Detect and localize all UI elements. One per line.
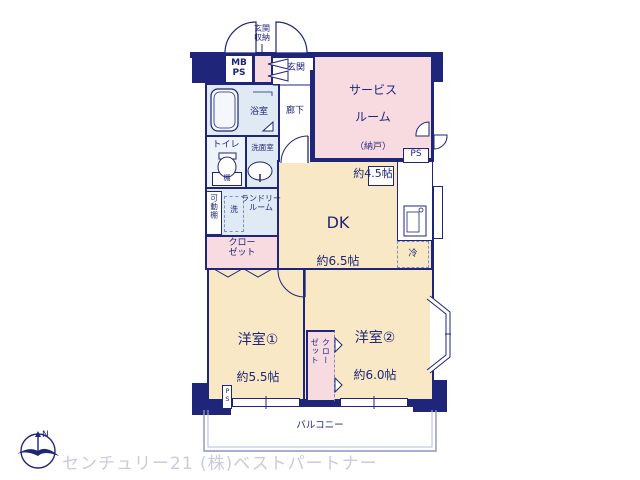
laundry-label: ランドリールーム	[241, 194, 281, 212]
compass-n-letter: N	[42, 430, 49, 440]
toilet-shelf-label: 棚	[212, 174, 242, 182]
door-arc	[281, 136, 308, 163]
bath-door-mark	[263, 122, 273, 131]
corridor-label: 廊下	[281, 106, 309, 116]
mbps-label: MB PS	[224, 58, 254, 79]
balcony-label: バルコニー	[290, 421, 350, 432]
bath-shelf-mark	[253, 92, 272, 96]
compass-north-icon: N	[12, 423, 64, 475]
genkan-storage-label: 玄関 収納	[246, 24, 278, 42]
floor-plan: 玄関 収納 MB PS 玄関 廊下 浴室 トイレ 棚 洗面室 可動棚 洗 ランド…	[0, 0, 640, 480]
bedroom1-label: 洋室① 約5.5帖	[213, 312, 303, 386]
ps-pillar-label: PS	[223, 387, 230, 403]
bedroom2-label: 洋室② 約6.0帖	[325, 310, 425, 384]
closet-left-label: クローゼット	[212, 238, 272, 259]
bath-label: 浴室	[244, 107, 274, 117]
washroom-label: 洗面室	[245, 144, 280, 153]
folding-door-mark	[214, 269, 242, 277]
hatch-door-icon	[434, 135, 447, 149]
door-arc	[278, 270, 305, 297]
movable-shelf-label: 可動棚	[209, 194, 218, 220]
folding-door-mark	[244, 269, 272, 277]
service-room-label: サービス ルーム （納戸） 約4.5帖	[323, 70, 423, 180]
ps-service-label: PS	[403, 149, 429, 159]
entrance-door-arc-right	[276, 22, 307, 53]
toilet-label: トイレ	[208, 140, 244, 150]
fridge-label: 冷	[397, 249, 429, 259]
watermark-text: センチュリー21 (株)ベストパートナー	[62, 449, 378, 474]
genkan-label: 玄関	[282, 63, 310, 73]
closet-center-label: クロー ゼット	[309, 338, 331, 365]
dk-label: DK 約6.5帖	[282, 196, 394, 270]
